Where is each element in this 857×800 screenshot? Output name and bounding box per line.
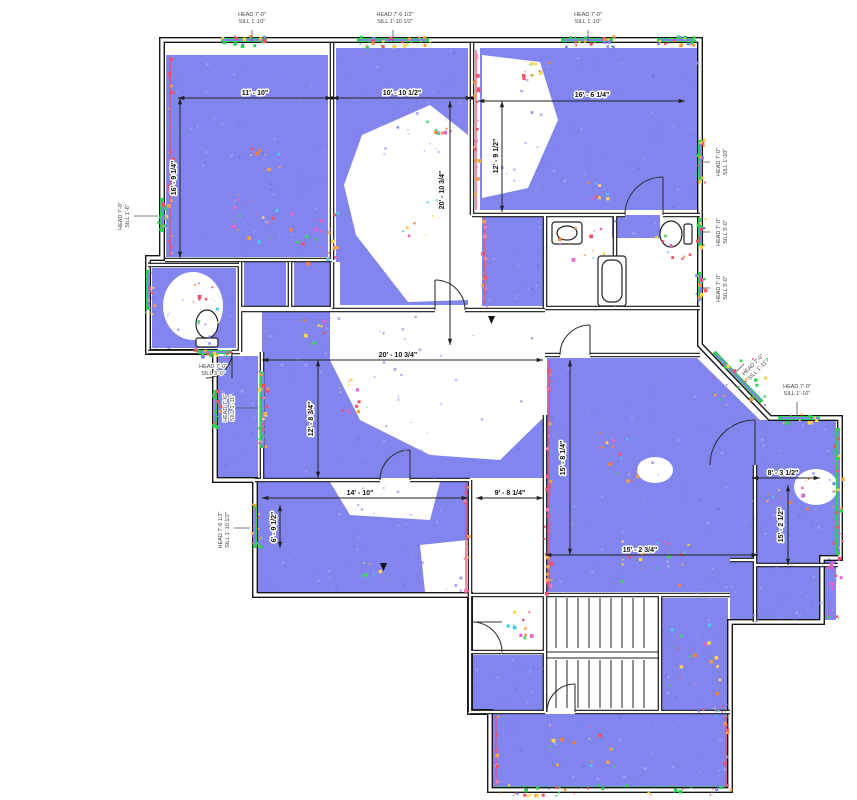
dimension-label: 6' - 9 1/2"	[271, 512, 278, 543]
dimension-label: 16' - 9 1/4"	[171, 161, 178, 196]
dimension-label: 20' - 10 3/4"	[439, 171, 446, 209]
sink-fixture	[552, 222, 582, 244]
svg-text:HEAD 7'-0": HEAD 7'-0"	[574, 12, 602, 18]
dimension-label: 15' - 2 3/4"	[623, 547, 658, 554]
svg-text:SILL 3'-0": SILL 3'-0"	[723, 220, 729, 244]
svg-text:SILL 1'-6": SILL 1'-6"	[125, 204, 131, 228]
svg-text:HEAD 7'-0": HEAD 7'-0"	[199, 364, 227, 370]
dimension-label: 12' - 9 1/2"	[493, 139, 500, 174]
window-head-sill-label: HEAD 7'-0"SILL 1'-10"	[716, 148, 729, 176]
svg-text:HEAD 7'-0": HEAD 7'-0"	[716, 218, 722, 246]
dimension-label: 15' - 2 1/2"	[778, 508, 785, 543]
svg-text:HEAD 7'-0": HEAD 7'-0"	[118, 202, 124, 230]
dimension-label: 9' - 8 1/4"	[495, 490, 526, 497]
floor-plan-page: 11' - 10" 10' - 10 1/2" 16' - 6 1/4" 16'…	[0, 0, 857, 800]
svg-text:HEAD 7'-0": HEAD 7'-0"	[716, 148, 722, 176]
toilet-fixture-2	[660, 221, 692, 247]
window-head-sill-label: HEAD 7'-0"SILL 3'-0"	[716, 274, 729, 302]
svg-text:HEAD 7'-6": HEAD 7'-6"	[223, 394, 229, 422]
dimension-label: 15' - 8 1/4"	[560, 441, 567, 476]
window-head-sill-label: HEAD 7'-0"SILL 1'-10"	[238, 12, 266, 25]
window-head-sill-label: HEAD 7'-0"SILL 1'-10"	[783, 384, 811, 397]
window-head-sill-label: HEAD 7'-6 1/2"SILL 1'-10 1/2"	[218, 511, 231, 548]
dimension-label: 14' - 10"	[347, 490, 374, 497]
svg-text:SILL 3'-0": SILL 3'-0"	[723, 276, 729, 300]
svg-text:SILL 1'-10": SILL 1'-10"	[239, 19, 266, 25]
svg-text:SILL 1'-10": SILL 1'-10"	[723, 149, 729, 176]
floor-plan-canvas: 11' - 10" 10' - 10 1/2" 16' - 6 1/4" 16'…	[0, 0, 857, 800]
window-head-sill-label: HEAD 7'-0"SILL 3'-0"	[716, 218, 729, 246]
svg-text:HEAD 7'-0": HEAD 7'-0"	[716, 274, 722, 302]
window-head-sill-label: HEAD 7'-6"SILL 1'-11"	[223, 394, 236, 422]
svg-text:SILL 1'-11": SILL 1'-11"	[230, 395, 236, 421]
bathtub-fixture	[598, 256, 626, 306]
svg-text:HEAD 7'-0": HEAD 7'-0"	[238, 12, 266, 18]
dimension-label: 10' - 10 1/2"	[383, 90, 421, 97]
svg-text:HEAD 7'-0": HEAD 7'-0"	[783, 384, 811, 390]
staircase	[547, 598, 658, 708]
svg-text:HEAD 7'-6 1/2": HEAD 7'-6 1/2"	[218, 511, 224, 548]
svg-text:SILL 1'-10": SILL 1'-10"	[575, 19, 602, 25]
toilet-fixture	[196, 310, 218, 347]
svg-text:SILL 1'-10 1/2": SILL 1'-10 1/2"	[377, 19, 413, 25]
svg-text:SILL 1'-10 1/2": SILL 1'-10 1/2"	[225, 512, 231, 548]
svg-text:HEAD 7'-6 1/2": HEAD 7'-6 1/2"	[377, 12, 414, 18]
svg-text:SILL 1'-10": SILL 1'-10"	[784, 391, 811, 397]
dimension-label: 16' - 6 1/4"	[575, 92, 610, 99]
window-head-sill-label: HEAD 7'-6 1/2"SILL 1'-10 1/2"	[377, 12, 414, 25]
dimension-label: 12' - 8 3/4"	[308, 402, 315, 437]
dimension-label: 20' - 10 3/4"	[379, 352, 417, 359]
window-head-sill-label: HEAD 7'-0"SILL 1'-10"	[574, 12, 602, 25]
window-head-sill-label: HEAD 7'-0"SILL 1'-6"	[118, 202, 131, 230]
dimension-label: 8' - 3 1/2"	[768, 470, 799, 477]
window-head-sill-label: HEAD 7'-0"SILL 3'-0"	[199, 364, 227, 377]
dimension-label: 11' - 10"	[242, 90, 268, 97]
svg-text:SILL 3'-0": SILL 3'-0"	[201, 371, 225, 377]
